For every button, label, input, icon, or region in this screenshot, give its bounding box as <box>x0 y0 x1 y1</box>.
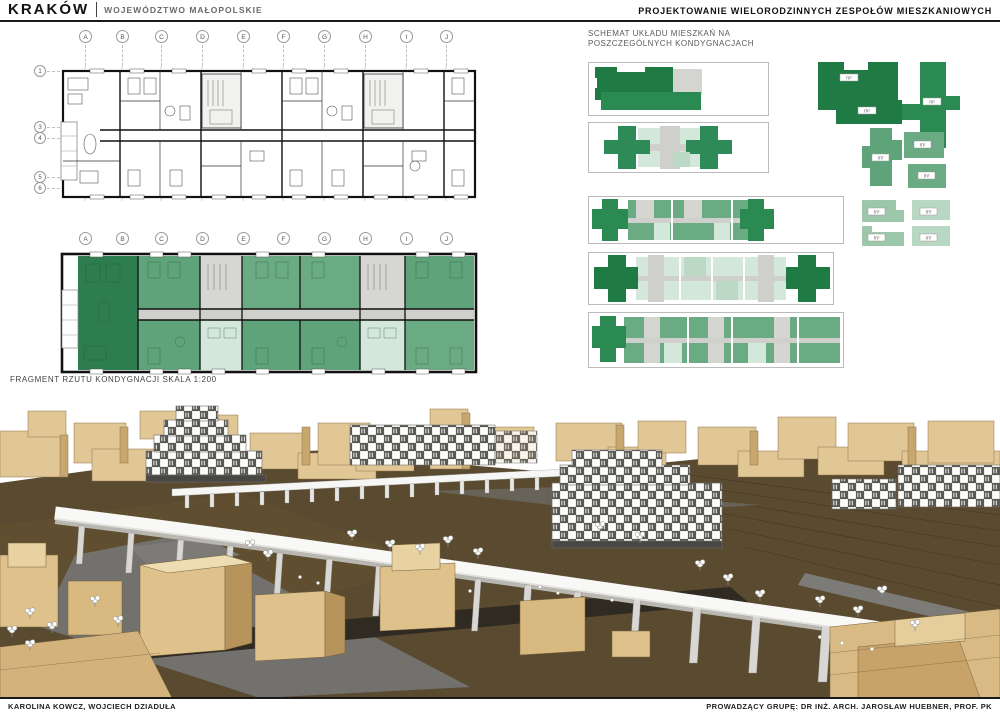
grid-row-label: 1 <box>34 65 46 77</box>
grid-col-label: G <box>318 232 331 245</box>
schematic-box-4 <box>588 252 850 305</box>
grid-row-label: 4 <box>34 132 46 144</box>
presentation-board: KRAKÓW WOJEWÓDZTWO MAŁOPOLSKIE PROJEKTOW… <box>0 0 1000 714</box>
schematic-box-5 <box>588 312 844 368</box>
grid-line <box>85 45 86 66</box>
schematic-box-3 <box>588 196 844 244</box>
area-label: m² <box>846 76 852 82</box>
grid-line <box>47 188 60 189</box>
area-label: m² <box>924 174 930 180</box>
grid-row-label: 6 <box>34 182 46 194</box>
area-label: m² <box>878 156 884 162</box>
grid-line <box>47 71 60 72</box>
grid-col-label: B <box>116 232 129 245</box>
grid-line <box>122 45 123 66</box>
grid-col-label: E <box>237 232 250 245</box>
grid-col-label: D <box>196 30 209 43</box>
plan-caption: FRAGMENT RZUTU KONDYGNACJI SKALA 1:200 <box>10 375 217 384</box>
schematic-box-2 <box>588 122 769 173</box>
grid-col-label: F <box>277 30 290 43</box>
schematic-group-3: m² m² m² m² <box>856 196 966 250</box>
footer-bar: KAROLINA KOWCZ, WOJCIECH DZIADUŁA PROWAD… <box>0 697 1000 714</box>
grid-col-label: B <box>116 30 129 43</box>
grid-col-label: F <box>277 232 290 245</box>
grid-col-label: D <box>196 232 209 245</box>
grid-line <box>365 45 366 66</box>
grid-col-label: E <box>237 30 250 43</box>
grid-line <box>47 127 60 128</box>
grid-line <box>47 177 60 178</box>
schematics-title: SCHEMAT UKŁADU MIESZKAŃ NA POSZCZEGÓLNYC… <box>588 29 754 49</box>
grid-col-label: A <box>79 30 92 43</box>
grid-col-label: I <box>400 232 413 245</box>
grid-line <box>446 45 447 66</box>
area-label: m² <box>926 236 932 242</box>
grid-col-label: G <box>318 30 331 43</box>
grid-col-label: H <box>359 232 372 245</box>
grid-line <box>324 45 325 66</box>
schematics-title-line2: POSZCZEGÓLNYCH KONDYGNACJACH <box>588 39 754 49</box>
area-label: m² <box>874 236 880 242</box>
grid-line <box>283 45 284 66</box>
grid-line <box>202 45 203 66</box>
floor-plan-bw <box>60 66 480 202</box>
area-label: m² <box>920 143 926 149</box>
render-3d <box>0 395 1000 698</box>
schematics-title-line1: SCHEMAT UKŁADU MIESZKAŃ NA <box>588 29 754 39</box>
grid-line <box>243 45 244 66</box>
grid-col-label: C <box>155 232 168 245</box>
grid-col-label: J <box>440 30 453 43</box>
grid-line <box>161 45 162 66</box>
grid-line <box>47 138 60 139</box>
grid-col-label: I <box>400 30 413 43</box>
header-divider <box>96 2 97 17</box>
schematic-group-2: m² m² m² <box>856 126 968 190</box>
grid-col-label: H <box>359 30 372 43</box>
supervisor-label: PROWADZĄCY GRUPĘ: DR INŻ. ARCH. JAROSŁAW… <box>706 702 992 711</box>
grid-col-label: J <box>440 232 453 245</box>
grid-col-label: A <box>79 232 92 245</box>
region-label: WOJEWÓDZTWO MAŁOPOLSKIE <box>104 5 263 15</box>
area-label: m² <box>926 210 932 216</box>
area-label: m² <box>929 100 935 106</box>
area-label: m² <box>864 109 870 115</box>
header-left: KRAKÓW WOJEWÓDZTWO MAŁOPOLSKIE <box>8 1 263 18</box>
course-title: PROJEKTOWANIE WIELORODZINNYCH ZESPOŁÓW M… <box>638 6 992 16</box>
header-bar: KRAKÓW WOJEWÓDZTWO MAŁOPOLSKIE PROJEKTOW… <box>0 0 1000 22</box>
grid-col-label: C <box>155 30 168 43</box>
authors-label: KAROLINA KOWCZ, WOJCIECH DZIADUŁA <box>8 702 176 711</box>
grid-line <box>406 45 407 66</box>
schematic-box-1 <box>588 62 769 116</box>
floor-plan-colored <box>60 250 480 376</box>
city-title: KRAKÓW <box>8 1 89 18</box>
area-label: m² <box>874 210 880 216</box>
